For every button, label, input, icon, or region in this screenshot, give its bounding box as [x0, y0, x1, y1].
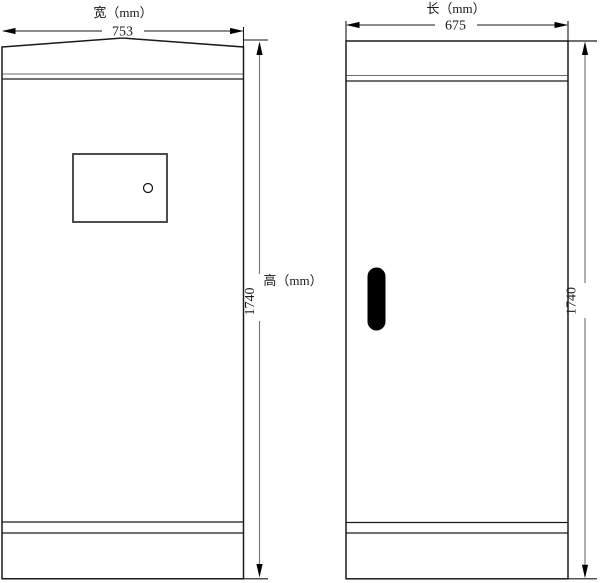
arrow-up-icon [256, 42, 262, 56]
side-length-dimension-label: 长（mm） [426, 1, 485, 16]
front-cabinet-outline [2, 38, 244, 579]
side-height-dimension-value: 1740 [565, 287, 580, 315]
arrow-right-icon [555, 22, 569, 28]
door-handle [368, 268, 386, 331]
arrow-right-icon [230, 28, 244, 34]
arrow-down-icon [256, 564, 262, 578]
side-view [346, 41, 597, 579]
front-view [2, 38, 268, 579]
side-length-dimension-value: 675 [445, 19, 466, 34]
arrow-down-icon [582, 565, 588, 579]
front-height-dimension-value: 1740 [243, 288, 258, 316]
lock-hole-icon [144, 184, 153, 193]
front-height-dimension: 1740 高（mm） [243, 40, 323, 578]
front-width-dimension-value: 753 [112, 25, 133, 40]
front-width-dimension-label: 宽（mm） [93, 5, 152, 20]
arrow-left-icon [346, 22, 360, 28]
arrow-up-icon [582, 42, 588, 56]
front-height-dimension-label: 高（mm） [263, 273, 322, 288]
arrow-left-icon [2, 28, 16, 34]
side-length-dimension: 长（mm） 675 [346, 1, 568, 41]
cabinet-drawing-svg: 宽（mm） 753 1740 高（mm） 长（mm） [0, 0, 600, 583]
drawing-canvas: 宽（mm） 753 1740 高（mm） 长（mm） [0, 0, 600, 583]
